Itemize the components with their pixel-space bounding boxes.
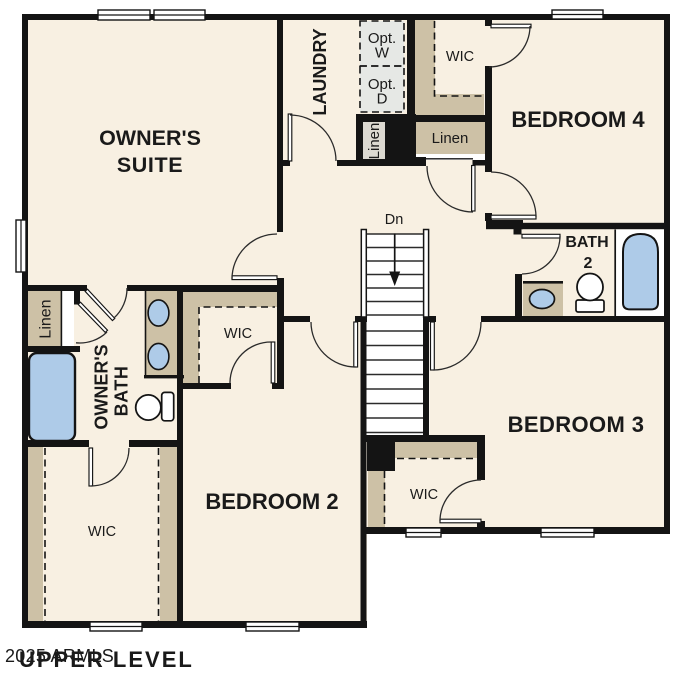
svg-text:Linen: Linen — [38, 299, 55, 338]
svg-text:WIC: WIC — [88, 524, 116, 540]
svg-text:2: 2 — [584, 255, 593, 272]
svg-text:OWNER'S: OWNER'S — [92, 344, 112, 429]
svg-text:D: D — [377, 91, 388, 108]
svg-text:Linen: Linen — [432, 130, 469, 147]
svg-text:BEDROOM 2: BEDROOM 2 — [205, 489, 338, 514]
svg-text:Linen: Linen — [366, 123, 383, 160]
svg-text:SUITE: SUITE — [117, 153, 183, 177]
svg-text:BEDROOM 4: BEDROOM 4 — [511, 107, 645, 132]
svg-text:BATH: BATH — [112, 366, 132, 417]
svg-text:UPPER LEVEL: UPPER LEVEL — [19, 647, 194, 672]
svg-text:WIC: WIC — [224, 326, 252, 342]
svg-text:WIC: WIC — [446, 49, 474, 65]
svg-text:BATH: BATH — [565, 234, 608, 251]
svg-text:OWNER'S: OWNER'S — [99, 126, 201, 150]
svg-text:LAUNDRY: LAUNDRY — [310, 28, 330, 115]
svg-text:Dn: Dn — [385, 212, 404, 228]
svg-text:WIC: WIC — [410, 487, 438, 503]
svg-text:BEDROOM 3: BEDROOM 3 — [508, 412, 645, 437]
svg-text:W: W — [375, 45, 390, 62]
